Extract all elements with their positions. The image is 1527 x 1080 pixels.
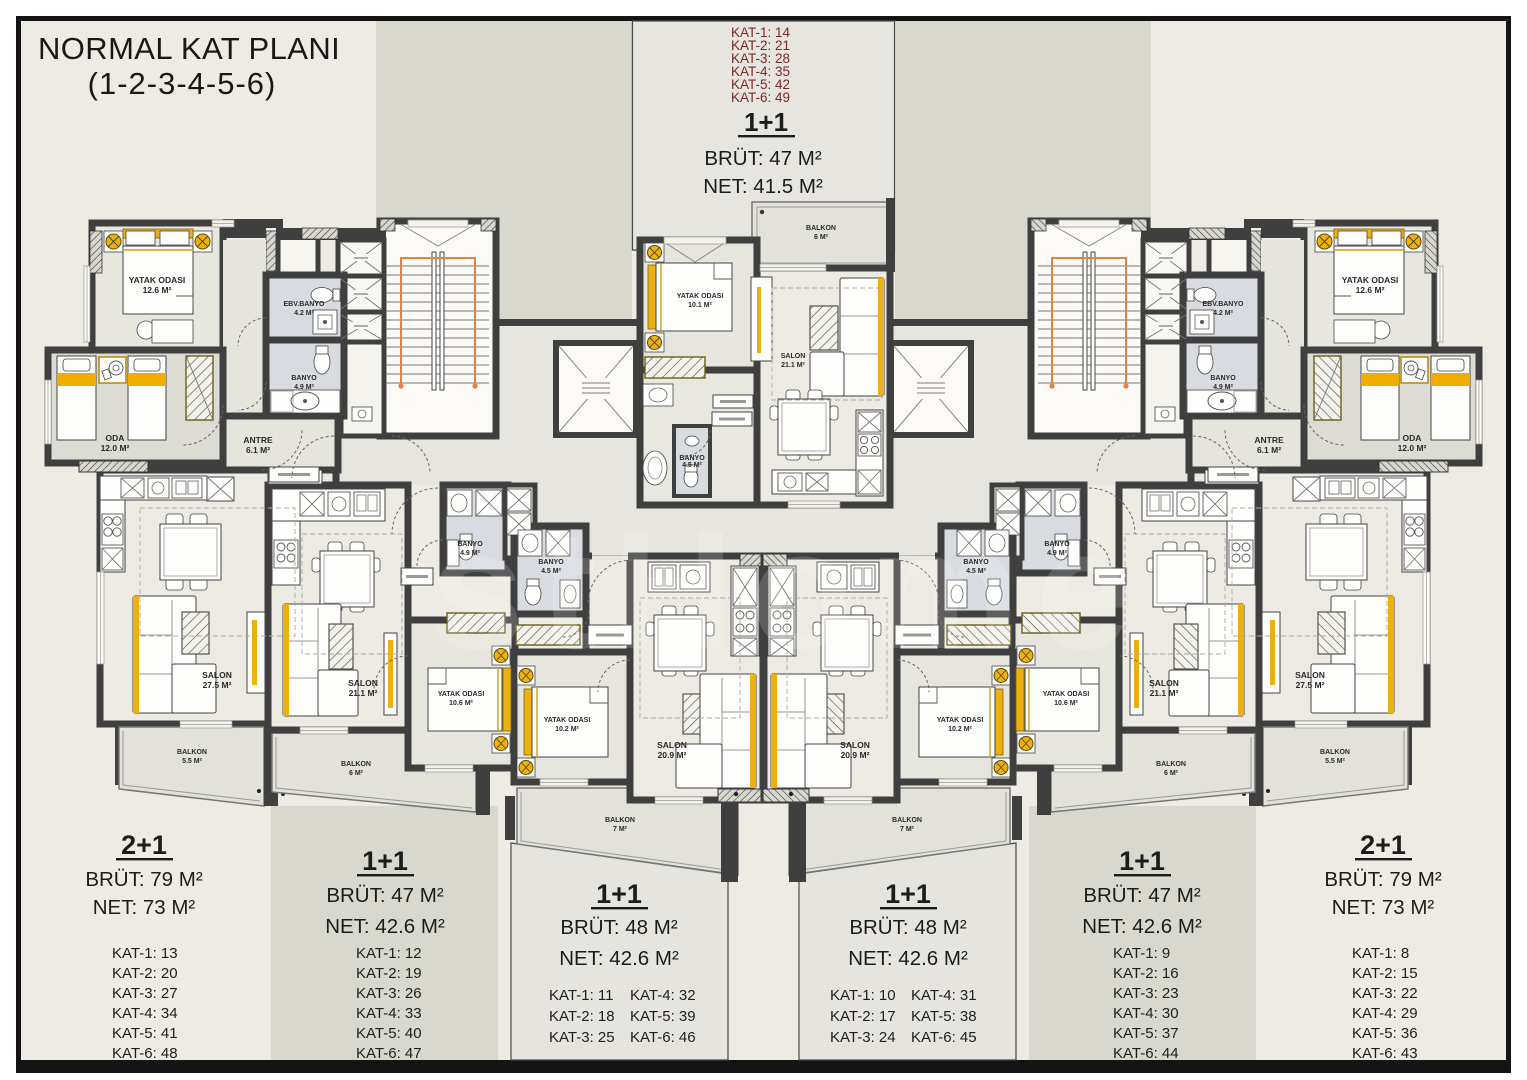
svg-text:4.2 M²: 4.2 M²: [1213, 310, 1234, 317]
svg-text:ANTRE: ANTRE: [1254, 435, 1284, 445]
svg-text:KAT-5: 38: KAT-5: 38: [911, 1008, 977, 1025]
svg-text:KAT-2: 17: KAT-2: 17: [830, 1008, 896, 1025]
svg-text:KAT-6: 46: KAT-6: 46: [630, 1029, 696, 1046]
svg-text:KAT-5: 39: KAT-5: 39: [630, 1008, 696, 1025]
svg-text:21.1 M²: 21.1 M²: [1150, 688, 1179, 698]
svg-text:4.9 M²: 4.9 M²: [460, 550, 481, 557]
svg-text:ODA: ODA: [1403, 433, 1422, 443]
svg-text:EBV.BANYO: EBV.BANYO: [1203, 301, 1245, 308]
svg-text:BANYO: BANYO: [457, 541, 483, 548]
svg-text:20.9 M²: 20.9 M²: [658, 750, 687, 760]
svg-text:2+1: 2+1: [1360, 830, 1406, 860]
svg-text:BALKON: BALKON: [605, 817, 635, 824]
svg-text:NET: 73 M²: NET: 73 M²: [93, 896, 196, 919]
svg-text:ODA: ODA: [106, 433, 125, 443]
svg-text:4.5 M²: 4.5 M²: [966, 568, 987, 575]
svg-text:YATAK ODASI: YATAK ODASI: [1043, 691, 1090, 698]
svg-text:BANYO: BANYO: [291, 375, 317, 382]
svg-text:BANYO: BANYO: [679, 455, 705, 462]
svg-text:YATAK ODASI: YATAK ODASI: [129, 275, 186, 285]
svg-text:6.1 M²: 6.1 M²: [246, 445, 270, 455]
svg-text:YATAK ODASI: YATAK ODASI: [1342, 275, 1399, 285]
svg-text:KAT-1: 9: KAT-1: 9: [1113, 945, 1170, 962]
svg-text:SALON: SALON: [202, 670, 232, 680]
svg-text:NET: 73 M²: NET: 73 M²: [1332, 896, 1435, 919]
svg-text:KAT-4: 34: KAT-4: 34: [112, 1005, 178, 1022]
svg-text:KAT-5: 41: KAT-5: 41: [112, 1025, 178, 1042]
svg-text:BALKON: BALKON: [177, 749, 207, 756]
svg-text:KAT-6: 47: KAT-6: 47: [356, 1045, 422, 1062]
svg-text:(1-2-3-4-5-6): (1-2-3-4-5-6): [88, 66, 277, 101]
svg-text:6 M²: 6 M²: [349, 770, 364, 777]
svg-text:KAT-6: 45: KAT-6: 45: [911, 1029, 977, 1046]
svg-text:KAT-1: 13: KAT-1: 13: [112, 945, 178, 962]
svg-text:10.6 M²: 10.6 M²: [449, 700, 473, 707]
svg-text:BALKON: BALKON: [1320, 749, 1350, 756]
svg-text:KAT-5: 36: KAT-5: 36: [1352, 1025, 1418, 1042]
svg-text:EBV.BANYO: EBV.BANYO: [284, 301, 326, 308]
svg-text:SALON: SALON: [840, 740, 870, 750]
svg-text:1+1: 1+1: [744, 107, 788, 137]
svg-text:BANYO: BANYO: [1044, 541, 1070, 548]
svg-text:12.6 M²: 12.6 M²: [143, 285, 172, 295]
svg-text:KAT-3: 23: KAT-3: 23: [1113, 985, 1179, 1002]
svg-text:10.6 M²: 10.6 M²: [1054, 700, 1078, 707]
svg-text:4.2 M²: 4.2 M²: [294, 310, 315, 317]
svg-text:YATAK ODASI: YATAK ODASI: [438, 691, 485, 698]
svg-text:KAT-2: 19: KAT-2: 19: [356, 965, 422, 982]
svg-text:BRÜT: 79 M²: BRÜT: 79 M²: [85, 868, 202, 891]
svg-text:SALON: SALON: [781, 353, 806, 360]
svg-text:KAT-1: 12: KAT-1: 12: [356, 945, 422, 962]
svg-text:KAT-6: 49: KAT-6: 49: [731, 90, 790, 105]
svg-text:1+1: 1+1: [885, 879, 931, 909]
svg-text:1+1: 1+1: [1119, 846, 1165, 876]
svg-text:10.2 M²: 10.2 M²: [948, 726, 972, 733]
svg-text:5.5 M²: 5.5 M²: [182, 758, 203, 765]
svg-text:1+1: 1+1: [596, 879, 642, 909]
svg-text:KAT-4: 29: KAT-4: 29: [1352, 1005, 1418, 1022]
svg-text:BALKON: BALKON: [806, 225, 836, 232]
svg-text:27.5 M²: 27.5 M²: [1296, 680, 1325, 690]
svg-text:KAT-2: 15: KAT-2: 15: [1352, 965, 1418, 982]
svg-text:7 M²: 7 M²: [900, 826, 915, 833]
svg-text:KAT-6: 43: KAT-6: 43: [1352, 1045, 1418, 1062]
svg-text:7 M²: 7 M²: [613, 826, 628, 833]
svg-text:BANYO: BANYO: [1210, 375, 1236, 382]
svg-text:4.9 M²: 4.9 M²: [1047, 550, 1068, 557]
svg-text:21.1 M²: 21.1 M²: [349, 688, 378, 698]
svg-text:10.1 M²: 10.1 M²: [688, 302, 712, 309]
svg-text:BRÜT: 47 M²: BRÜT: 47 M²: [1083, 884, 1200, 907]
svg-text:KAT-3: 24: KAT-3: 24: [830, 1029, 896, 1046]
svg-text:ANTRE: ANTRE: [243, 435, 273, 445]
svg-text:NET: 42.6 M²: NET: 42.6 M²: [848, 947, 968, 970]
svg-text:4.9 M²: 4.9 M²: [294, 384, 315, 391]
svg-text:4.9 M²: 4.9 M²: [1213, 384, 1234, 391]
svg-text:KAT-4: 31: KAT-4: 31: [911, 987, 977, 1004]
svg-text:SALON: SALON: [348, 678, 378, 688]
svg-text:NET: 41.5 M²: NET: 41.5 M²: [703, 175, 823, 198]
svg-text:KAT-5: 40: KAT-5: 40: [356, 1025, 422, 1042]
svg-text:5.5 M²: 5.5 M²: [1325, 758, 1346, 765]
svg-text:12.0 M²: 12.0 M²: [101, 443, 130, 453]
svg-text:KAT-3: 25: KAT-3: 25: [549, 1029, 615, 1046]
svg-text:YATAK ODASI: YATAK ODASI: [937, 717, 984, 724]
svg-text:20.9 M²: 20.9 M²: [841, 750, 870, 760]
svg-text:12.6 M²: 12.6 M²: [1356, 285, 1385, 295]
svg-text:BRÜT: 48 M²: BRÜT: 48 M²: [560, 916, 677, 939]
svg-text:BANYO: BANYO: [538, 559, 564, 566]
svg-text:YATAK ODASI: YATAK ODASI: [544, 717, 591, 724]
svg-text:BALKON: BALKON: [341, 761, 371, 768]
svg-text:BRÜT: 79 M²: BRÜT: 79 M²: [1324, 868, 1441, 891]
svg-text:SALON: SALON: [657, 740, 687, 750]
svg-text:NET: 42.6 M²: NET: 42.6 M²: [1082, 915, 1202, 938]
svg-text:KAT-1: 11: KAT-1: 11: [549, 987, 613, 1004]
svg-text:KAT-6: 48: KAT-6: 48: [112, 1045, 178, 1062]
svg-text:KAT-6: 44: KAT-6: 44: [1113, 1045, 1179, 1062]
svg-text:2+1: 2+1: [121, 830, 167, 860]
svg-text:BALKON: BALKON: [892, 817, 922, 824]
svg-text:1+1: 1+1: [362, 846, 408, 876]
svg-text:6.1 M²: 6.1 M²: [1257, 445, 1281, 455]
svg-text:BRÜT: 47 M²: BRÜT: 47 M²: [326, 884, 443, 907]
svg-text:4.5 M²: 4.5 M²: [541, 568, 562, 575]
svg-text:12.0 M²: 12.0 M²: [1398, 443, 1427, 453]
svg-text:KAT-1: 10: KAT-1: 10: [830, 987, 896, 1004]
svg-text:KAT-3: 27: KAT-3: 27: [112, 985, 178, 1002]
svg-text:BRÜT: 47 M²: BRÜT: 47 M²: [704, 147, 821, 170]
svg-text:SALON: SALON: [1295, 670, 1325, 680]
svg-text:KAT-4: 32: KAT-4: 32: [630, 987, 696, 1004]
svg-text:KAT-3: 22: KAT-3: 22: [1352, 985, 1418, 1002]
svg-text:4.5 M²: 4.5 M²: [682, 462, 703, 469]
svg-text:KAT-5: 37: KAT-5: 37: [1113, 1025, 1179, 1042]
svg-text:KAT-4: 30: KAT-4: 30: [1113, 1005, 1179, 1022]
svg-text:KAT-1: 8: KAT-1: 8: [1352, 945, 1409, 962]
svg-text:KAT-2: 18: KAT-2: 18: [549, 1008, 615, 1025]
svg-text:KAT-3: 26: KAT-3: 26: [356, 985, 422, 1002]
svg-text:10.2 M²: 10.2 M²: [555, 726, 579, 733]
svg-text:BRÜT: 48 M²: BRÜT: 48 M²: [849, 916, 966, 939]
svg-text:YATAK ODASI: YATAK ODASI: [677, 293, 724, 300]
svg-text:NORMAL KAT PLANI: NORMAL KAT PLANI: [38, 31, 340, 66]
svg-text:21.1 M²: 21.1 M²: [781, 362, 805, 369]
svg-text:KAT-4: 33: KAT-4: 33: [356, 1005, 422, 1022]
svg-text:6 M²: 6 M²: [1164, 770, 1179, 777]
svg-text:27.5 M²: 27.5 M²: [203, 680, 232, 690]
svg-text:BALKON: BALKON: [1156, 761, 1186, 768]
svg-text:NET: 42.6 M²: NET: 42.6 M²: [559, 947, 679, 970]
svg-text:BANYO: BANYO: [963, 559, 989, 566]
svg-text:SALON: SALON: [1149, 678, 1179, 688]
svg-text:KAT-2: 16: KAT-2: 16: [1113, 965, 1179, 982]
svg-text:6 M²: 6 M²: [814, 234, 829, 241]
svg-text:NET: 42.6 M²: NET: 42.6 M²: [325, 915, 445, 938]
svg-text:KAT-2: 20: KAT-2: 20: [112, 965, 178, 982]
